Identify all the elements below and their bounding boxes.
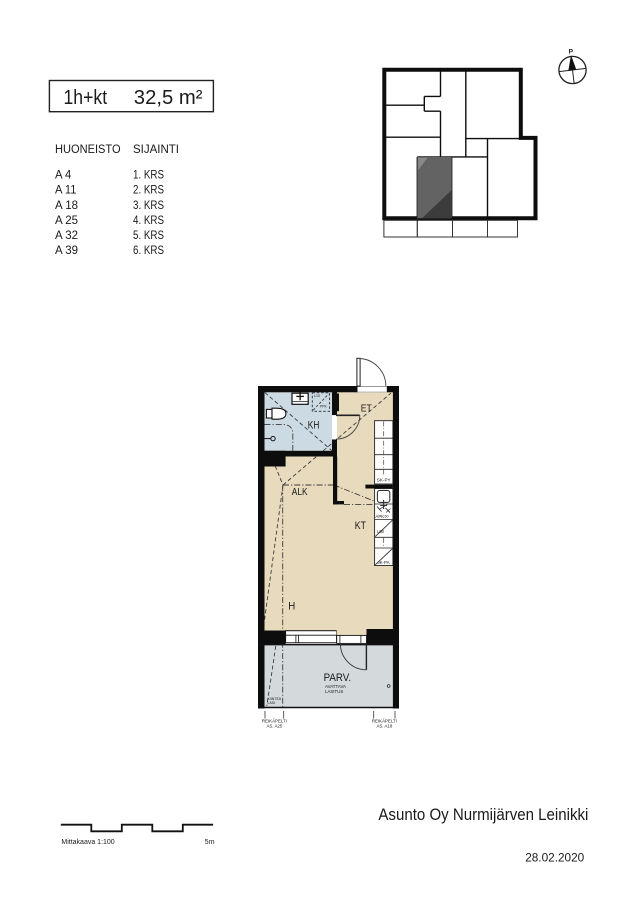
svg-text:APK: APK: [375, 514, 384, 519]
svg-text:KT: KT: [355, 520, 367, 532]
svg-text:SIJAINTI: SIJAINTI: [133, 142, 179, 156]
svg-text:LASI: LASI: [268, 701, 276, 705]
svg-text:3. KRS: 3. KRS: [133, 198, 164, 212]
svg-text:L60: L60: [377, 529, 385, 534]
svg-text:PPK: PPK: [320, 405, 328, 409]
svg-text:Asunto Oy Nurmijärven Leinikki: Asunto Oy Nurmijärven Leinikki: [378, 806, 588, 824]
svg-text:A 25: A 25: [55, 213, 78, 227]
svg-text:SK-PY: SK-PY: [377, 478, 391, 483]
svg-text:A 18: A 18: [55, 198, 78, 212]
svg-text:A 11: A 11: [55, 183, 77, 197]
svg-text:HUONEISTO: HUONEISTO: [55, 142, 121, 156]
svg-text:A 39: A 39: [55, 243, 78, 257]
svg-text:ET: ET: [361, 403, 372, 414]
svg-text:A 4: A 4: [55, 168, 71, 182]
svg-text:A 32: A 32: [55, 228, 78, 242]
svg-text:AVATTAVA: AVATTAVA: [325, 684, 346, 689]
svg-text:P: P: [569, 49, 574, 56]
svg-text:2. KRS: 2. KRS: [133, 183, 164, 197]
svg-text:60: 60: [385, 515, 389, 519]
svg-text:32,5 m²: 32,5 m²: [134, 87, 203, 109]
svg-text:28.02.2020: 28.02.2020: [525, 851, 584, 865]
svg-text:LASITUS: LASITUS: [325, 689, 343, 694]
svg-text:KH: KH: [308, 419, 320, 431]
svg-text:H: H: [288, 600, 295, 612]
svg-text:5m: 5m: [205, 839, 215, 846]
svg-text:6. KRS: 6. KRS: [133, 243, 164, 257]
svg-text:PARV.: PARV.: [324, 672, 352, 684]
svg-text:JK-PA: JK-PA: [377, 560, 389, 565]
svg-text:ALK: ALK: [292, 487, 308, 498]
svg-text:AS. A25: AS. A25: [266, 723, 282, 728]
svg-text:L10: L10: [314, 394, 320, 398]
svg-text:AS. A18: AS. A18: [376, 723, 392, 728]
svg-text:1h+kt: 1h+kt: [64, 87, 108, 109]
svg-text:5. KRS: 5. KRS: [133, 228, 164, 242]
svg-text:4. KRS: 4. KRS: [133, 213, 164, 227]
svg-text:1. KRS: 1. KRS: [133, 168, 164, 182]
svg-text:Mittakaava 1:100: Mittakaava 1:100: [61, 839, 114, 846]
